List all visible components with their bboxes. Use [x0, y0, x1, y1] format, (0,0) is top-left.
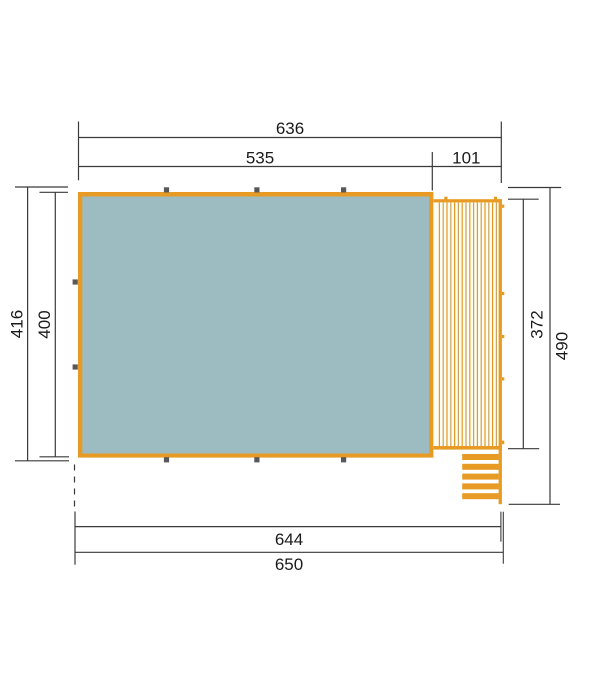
svg-text:101: 101	[452, 149, 480, 168]
svg-text:416: 416	[7, 310, 26, 338]
svg-text:636: 636	[276, 119, 304, 138]
svg-text:490: 490	[553, 332, 572, 360]
svg-text:535: 535	[246, 149, 274, 168]
svg-text:372: 372	[528, 310, 547, 338]
svg-text:644: 644	[275, 530, 303, 549]
svg-text:400: 400	[35, 310, 54, 338]
svg-text:650: 650	[275, 555, 303, 574]
